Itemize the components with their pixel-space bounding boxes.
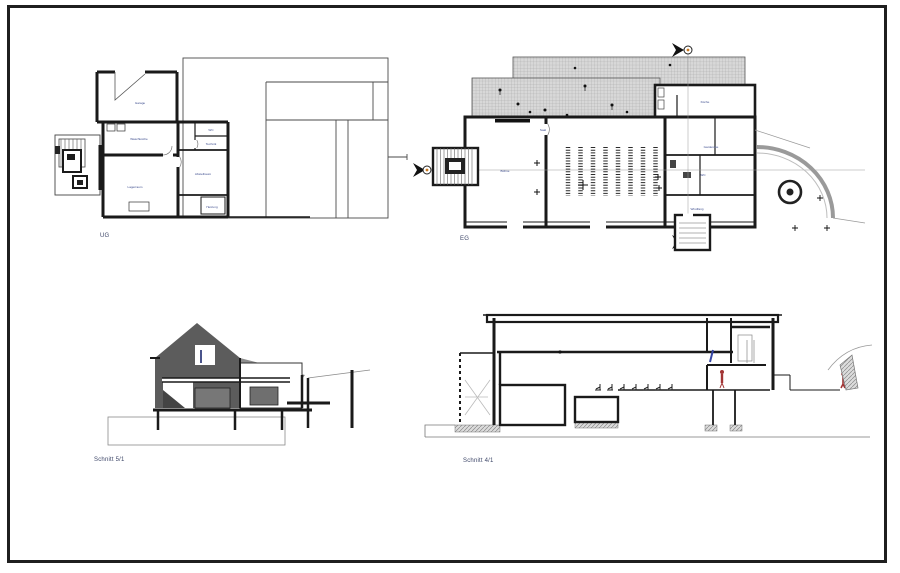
section-5-1: Schnitt 5/1 bbox=[50, 295, 390, 480]
room-label-waschkueche: Waschküche bbox=[130, 137, 148, 141]
section-marker-left-icon bbox=[413, 163, 431, 177]
room-label-windfang: Windfang bbox=[690, 207, 703, 211]
room-label-heizung: Heizung bbox=[206, 205, 218, 209]
room-label-kueche: Küche bbox=[701, 100, 710, 104]
stair-flight-faint bbox=[465, 380, 490, 415]
hall-block bbox=[465, 117, 755, 229]
person-figure-red bbox=[720, 370, 724, 388]
drawing-sheet: Garage Waschküche Lagerraum Abstellraum … bbox=[0, 0, 900, 573]
stairwell bbox=[55, 135, 100, 195]
section-marker-top-icon bbox=[672, 43, 692, 57]
floor-plan-ug: Garage Waschküche Lagerraum Abstellraum … bbox=[45, 50, 430, 250]
room-label-garage: Garage bbox=[135, 101, 146, 105]
garage-room bbox=[97, 72, 177, 122]
tree-symbol bbox=[779, 181, 801, 203]
door-swings bbox=[163, 140, 198, 167]
floor-plan-eg: Küche Garderobe WC Windfang Saal Bühne E… bbox=[415, 20, 870, 260]
eg-caption: EG bbox=[460, 236, 469, 242]
room-label-technik: Technik bbox=[206, 142, 217, 146]
s51-caption: Schnitt 5/1 bbox=[94, 457, 125, 463]
windfang bbox=[675, 214, 710, 251]
entrance-stairs bbox=[433, 148, 478, 185]
ceiling-dot bbox=[558, 350, 561, 353]
right-ramp bbox=[828, 345, 872, 390]
room-label-wc: WC bbox=[700, 173, 706, 177]
room-label-wc: WC bbox=[208, 128, 214, 132]
room-label-abstellraum: Abstellraum bbox=[195, 172, 212, 176]
ramp-curve bbox=[755, 130, 865, 223]
room-label-lagerraum: Lagerraum bbox=[128, 185, 143, 189]
room-label-buehne: Bühne bbox=[501, 169, 510, 173]
building-structure bbox=[460, 315, 840, 425]
door-lines bbox=[738, 335, 754, 363]
seat-glyphs bbox=[595, 384, 673, 390]
section-4-1: Schnitt 4/1 bbox=[420, 295, 880, 480]
upper-floor-outline bbox=[183, 58, 407, 218]
s41-caption: Schnitt 4/1 bbox=[463, 458, 494, 464]
ug-caption: UG bbox=[100, 233, 110, 239]
room-label-garderobe: Garderobe bbox=[704, 145, 719, 149]
room-label-saal: Saal bbox=[540, 128, 547, 132]
